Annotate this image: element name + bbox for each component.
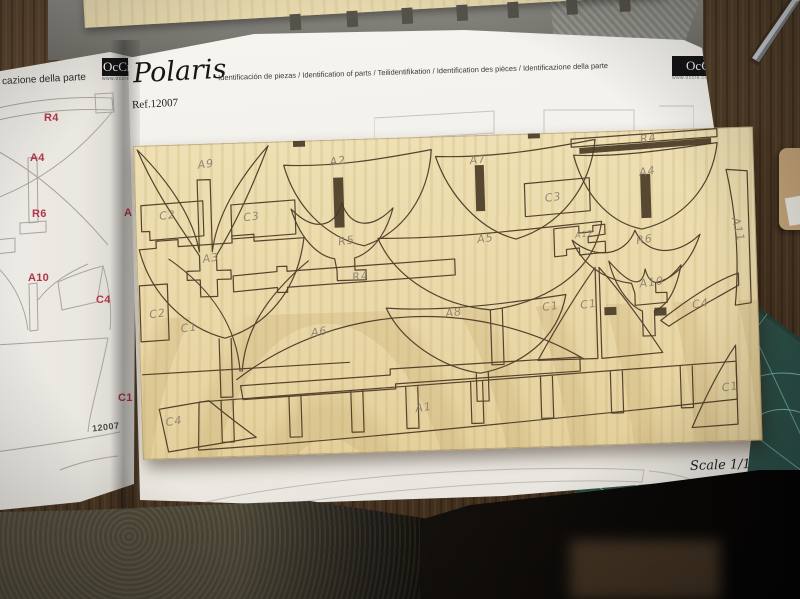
photo-vignette bbox=[0, 0, 800, 599]
photo-scene: 36 37 38 39 40 41 42 43 bbox=[0, 0, 800, 599]
